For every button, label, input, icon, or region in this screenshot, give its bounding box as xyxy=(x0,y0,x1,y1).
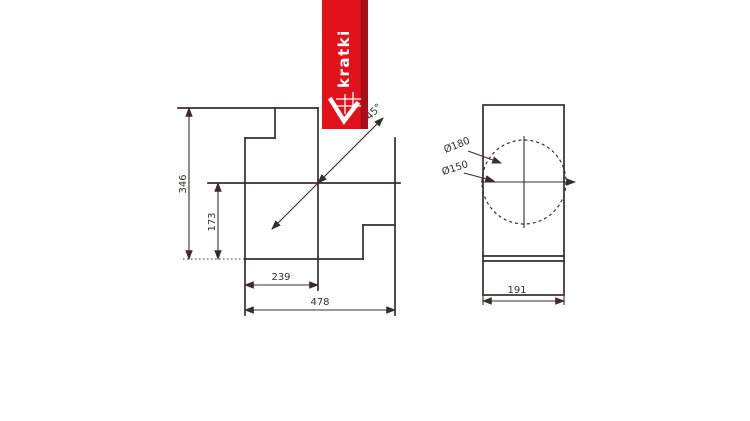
height-partial-label: 173 xyxy=(207,212,218,231)
flue-outer-diameter-label: Ø180 xyxy=(442,135,472,156)
front-view-width-partial-dimension: 239 xyxy=(245,272,318,285)
ribbon-shadow-edge xyxy=(361,0,369,129)
width-total-label: 478 xyxy=(310,297,329,308)
kratki-ribbon: kratki xyxy=(322,0,368,129)
technical-drawing: 45° 346 173 239 478 xyxy=(0,0,750,421)
kratki-logo-text: kratki xyxy=(335,29,353,88)
height-total-label: 346 xyxy=(178,174,189,193)
front-view: 45° 346 173 239 478 xyxy=(178,102,400,315)
flue-inner-diameter-label: Ø150 xyxy=(440,158,469,178)
front-view-height-partial-dimension: 173 xyxy=(207,183,218,259)
drawing-canvas: 45° 346 173 239 478 xyxy=(0,0,750,421)
depth-label: 191 xyxy=(507,285,526,296)
front-view-width-total-dimension: 478 xyxy=(245,297,395,310)
side-view: Ø180 Ø150 191 xyxy=(440,105,575,305)
width-partial-label: 239 xyxy=(271,272,290,283)
flue-diameter-callouts: Ø180 Ø150 xyxy=(440,135,501,181)
flue-outlet-circle xyxy=(481,136,575,228)
front-view-height-total-dimension: 346 xyxy=(178,108,189,259)
